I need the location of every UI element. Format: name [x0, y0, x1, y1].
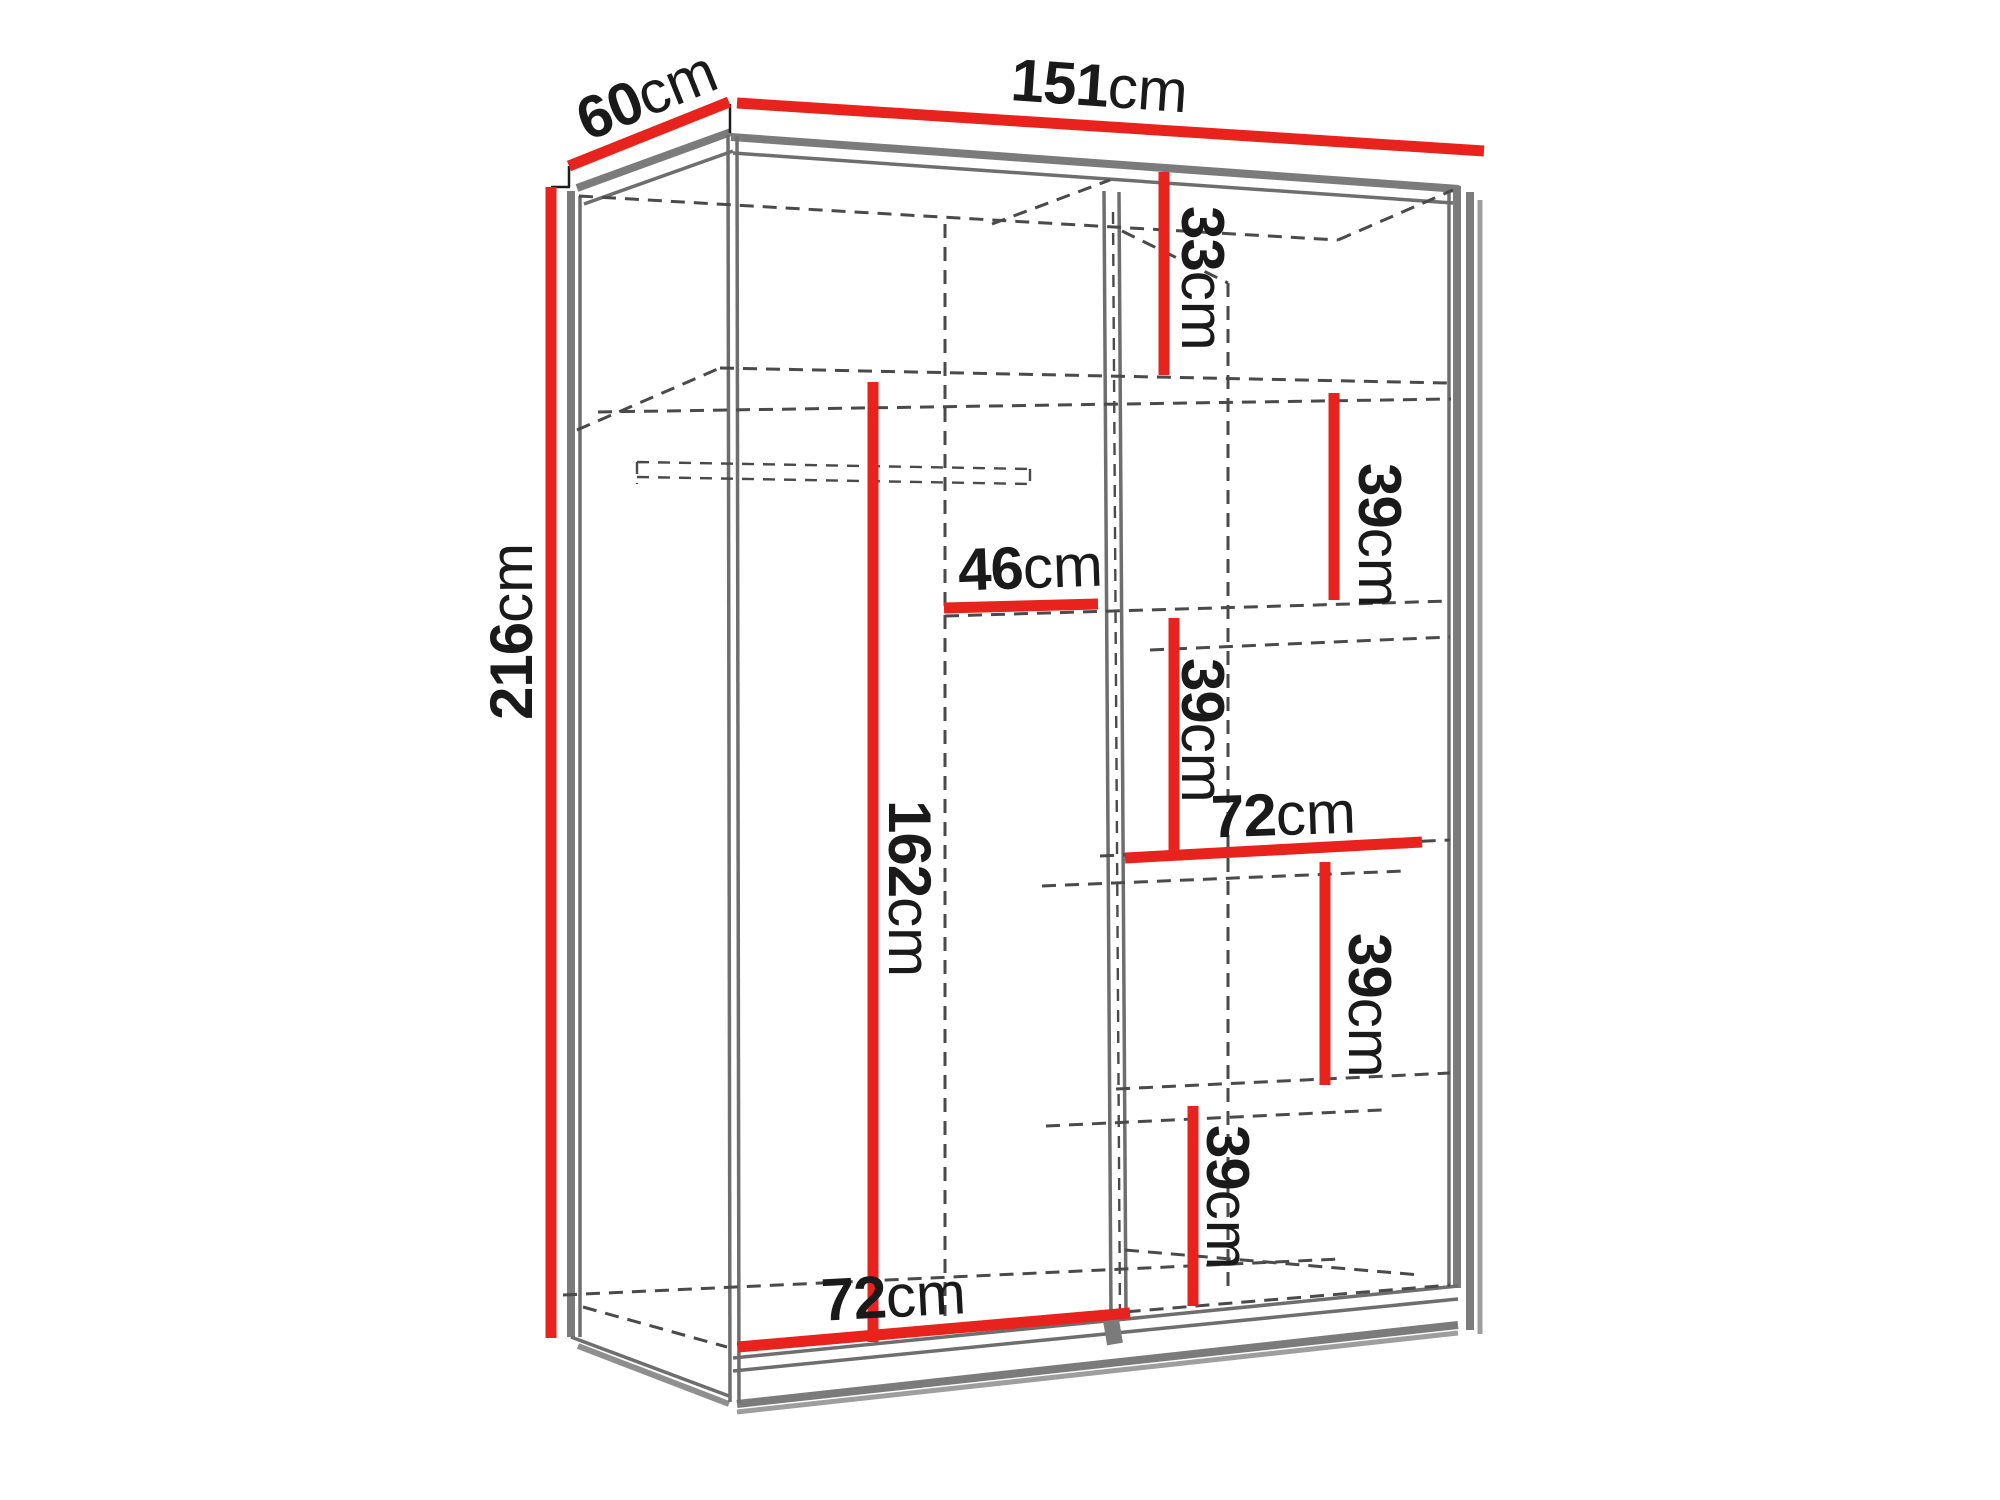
dim-label-39-bottom: 39cm	[1194, 1125, 1261, 1270]
floor-left-diagonal	[583, 1307, 727, 1347]
floor-right-detail	[1125, 1250, 1420, 1275]
divider-foot	[1111, 1320, 1115, 1344]
wardrobe-dimension-diagram: 60cm 151cm 216cm 33cm 39cm 46cm 39cm 72c…	[0, 0, 2000, 1500]
dimension-lines	[551, 102, 1484, 1347]
center-divider-right	[1119, 192, 1126, 1318]
dim-label-33: 33cm	[1169, 206, 1236, 351]
dim-label-height-216: 216cm	[478, 543, 545, 720]
interior-dashed-lines	[563, 180, 1453, 1347]
dim-label-72-bottom: 72cm	[819, 1259, 967, 1333]
hanging-rail	[637, 462, 1030, 484]
dim-label-162: 162cm	[876, 800, 943, 977]
wardrobe-diagram-page: 60cm 151cm 216cm 33cm 39cm 46cm 39cm 72c…	[0, 0, 2000, 1500]
front-left-edge-a	[728, 135, 730, 1402]
top-shelf-front-edge	[598, 399, 1451, 412]
top-shelf-left-diagonal	[577, 368, 720, 430]
bottom-shadow	[737, 1333, 1458, 1412]
dim-label-39-upper: 39cm	[1346, 463, 1413, 608]
shelf-46-back-edge	[1150, 637, 1450, 650]
dim-label-39-lower: 39cm	[1336, 933, 1403, 1078]
shelf-72-back-edge	[1042, 871, 1404, 886]
dim-label-width-151: 151cm	[1009, 46, 1190, 125]
dim-label-72-middle: 72cm	[1210, 778, 1357, 850]
dim-line-46	[944, 604, 1098, 608]
center-divider-left	[1104, 191, 1111, 1318]
top-shelf-back-edge	[720, 368, 1447, 383]
divider-top-depth-diagonal	[992, 180, 1110, 224]
cabinet-outline	[571, 132, 1470, 1404]
left-panel-bottom-edge	[571, 1337, 729, 1396]
front-left-edge-b	[737, 136, 739, 1403]
dim-label-46: 46cm	[957, 531, 1104, 603]
left-bottom-shadow	[578, 1346, 729, 1404]
shelf-4-back-edge	[1046, 1110, 1382, 1126]
dim-label-39-middle: 39cm	[1169, 658, 1236, 803]
